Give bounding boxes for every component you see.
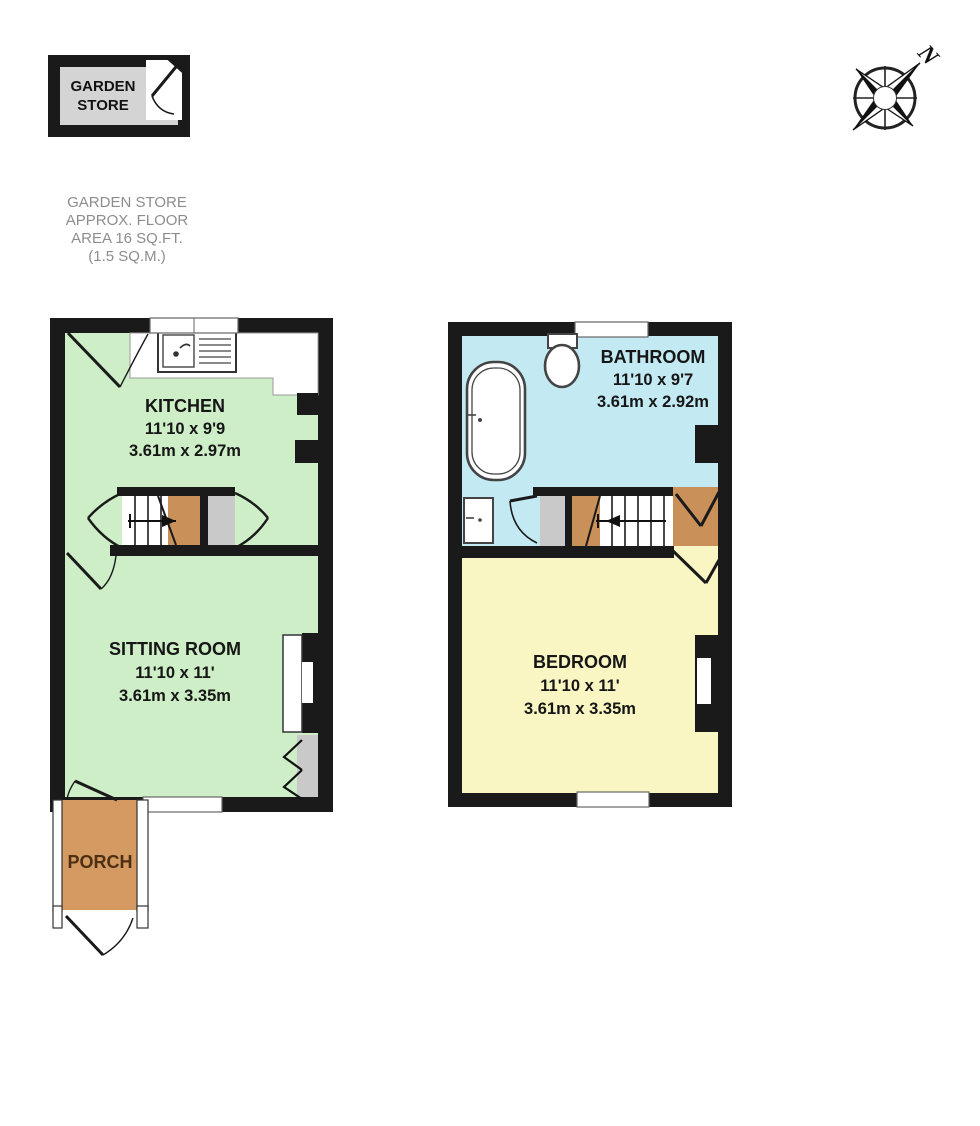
front-door-leaf: [66, 916, 103, 955]
sitting-room-label: SITTING ROOM: [109, 639, 241, 659]
garden-store-label-1: GARDEN: [70, 78, 135, 95]
toilet-icon: [545, 334, 579, 387]
stair-landing: [673, 487, 718, 546]
washbasin-icon: [464, 498, 493, 543]
bathroom-window: [575, 322, 648, 337]
caption-line: GARDEN STORE: [38, 194, 216, 212]
porch-label: PORCH: [67, 852, 132, 872]
caption-line: APPROX. FLOOR: [38, 212, 216, 230]
caption-line: AREA 16 SQ.FT.: [38, 230, 216, 248]
front-door-arc: [103, 918, 133, 955]
dividing-wall: [110, 545, 333, 556]
bathroom-dims-metric: 3.61m x 2.92m: [597, 393, 709, 411]
dividing-wall: [448, 546, 674, 558]
sitting-room-dims-imperial: 11'10 x 11': [135, 664, 215, 682]
kitchen-dims-imperial: 11'10 x 9'9: [145, 420, 225, 438]
chimney-breast: [695, 635, 718, 732]
garden-store-plan: GARDEN STORE: [44, 50, 194, 142]
bedroom-dims-metric: 3.61m x 3.35m: [524, 700, 636, 718]
compass-icon: [853, 63, 920, 130]
staircase-down: [533, 487, 673, 546]
sitting-room-window: [143, 797, 222, 812]
bedroom-dims-imperial: 11'10 x 11': [540, 677, 620, 695]
wall-pier: [295, 440, 318, 463]
wall-pier: [695, 425, 718, 463]
ground-floor-plan: KITCHEN 11'10 x 9'9 3.61m x 2.97m SITTIN…: [40, 310, 345, 990]
sink-icon: [158, 330, 236, 372]
kitchen-label: KITCHEN: [145, 396, 225, 416]
wall-pier: [297, 393, 318, 415]
floorplan-page: GARDEN STORE GARDEN STORE APPROX. FLOOR …: [0, 0, 980, 1126]
kitchen-dims-metric: 3.61m x 2.97m: [129, 442, 241, 460]
sitting-room-dims-metric: 3.61m x 3.35m: [119, 687, 231, 705]
garden-store-caption: GARDEN STORE APPROX. FLOOR AREA 16 SQ.FT…: [38, 194, 216, 266]
compass-rose: N: [825, 28, 960, 168]
bedroom-window: [577, 792, 649, 807]
fireplace: [283, 633, 318, 733]
bedroom-label: BEDROOM: [533, 652, 627, 672]
bathroom-label: BATHROOM: [601, 347, 706, 367]
bathroom-dims-imperial: 11'10 x 9'7: [613, 371, 693, 389]
caption-line: (1.5 SQ.M.): [38, 248, 216, 266]
first-floor-plan: BATHROOM 11'10 x 9'7 3.61m x 2.92m BEDRO…: [440, 315, 740, 815]
garden-store-label-2: STORE: [77, 97, 128, 114]
bathtub-icon: [467, 362, 525, 480]
